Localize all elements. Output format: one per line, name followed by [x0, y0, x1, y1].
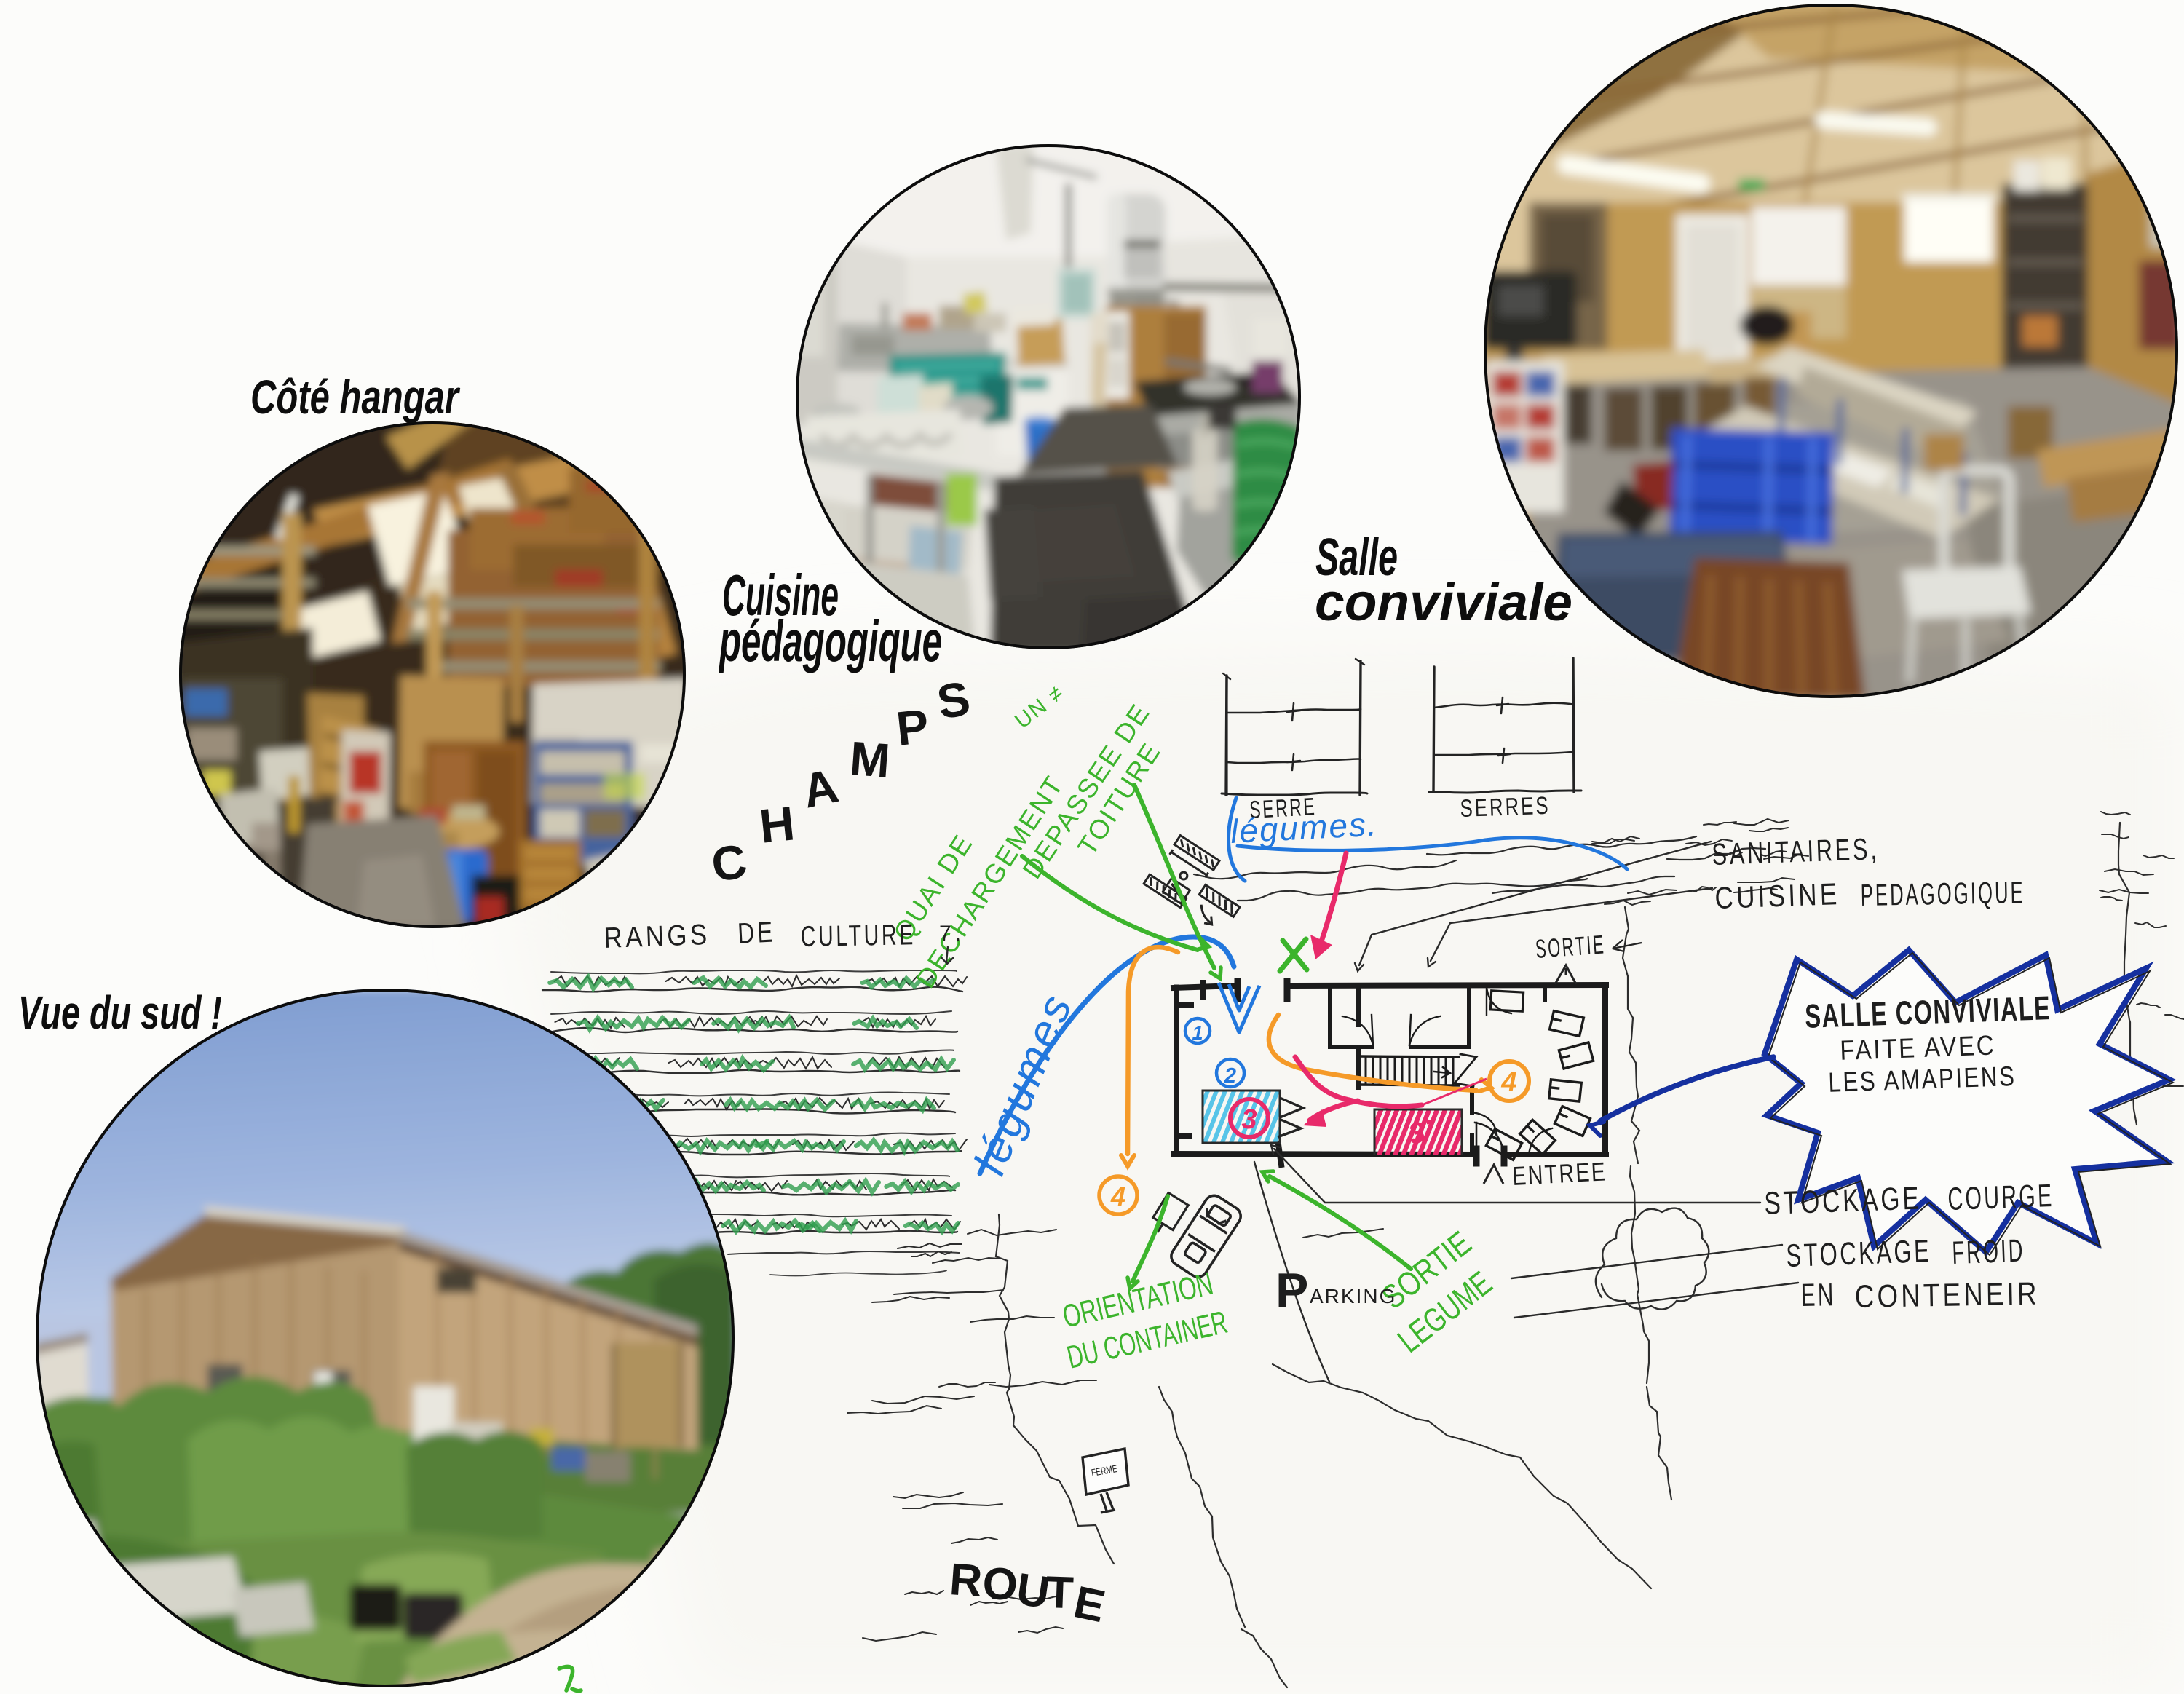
- svg-text:STOCKAGE: STOCKAGE: [1764, 1180, 1923, 1222]
- svg-text:CUISINE: CUISINE: [1714, 876, 1841, 915]
- svg-text:7.: 7.: [939, 922, 965, 946]
- svg-text:LES AMAPIENS: LES AMAPIENS: [1828, 1061, 2017, 1099]
- svg-text:P: P: [1275, 1263, 1308, 1318]
- svg-text:légumes.: légumes.: [1230, 804, 1379, 850]
- svg-text:SERRES: SERRES: [1460, 792, 1551, 823]
- svg-text:Vue du sud !: Vue du sud !: [18, 986, 222, 1039]
- svg-text:SANITAIRES,: SANITAIRES,: [1712, 831, 1880, 871]
- svg-text:STOCKAGE: STOCKAGE: [1786, 1233, 1933, 1274]
- svg-text:2: 2: [1224, 1064, 1236, 1088]
- svg-text:H: H: [757, 796, 797, 853]
- svg-text:1: 1: [1192, 1022, 1203, 1044]
- svg-text:4: 4: [1500, 1067, 1516, 1098]
- svg-text:pédagogique: pédagogique: [719, 609, 942, 673]
- svg-text:ARKING: ARKING: [1310, 1285, 1396, 1307]
- svg-text:SORTIE: SORTIE: [1535, 929, 1607, 964]
- svg-text:PEDAGOGIQUE: PEDAGOGIQUE: [1860, 875, 2025, 912]
- svg-text:conviviale: conviviale: [1315, 574, 1572, 632]
- svg-text:T: T: [1045, 1567, 1075, 1618]
- svg-text:FAITE AVEC: FAITE AVEC: [1840, 1030, 1996, 1066]
- svg-text:CULTURE: CULTURE: [800, 919, 916, 953]
- svg-text:R: R: [948, 1554, 984, 1607]
- svg-text:DE: DE: [737, 916, 776, 950]
- svg-text:FROID: FROID: [1952, 1233, 2026, 1271]
- svg-text:3: 3: [1241, 1104, 1257, 1135]
- svg-text:O: O: [982, 1559, 1019, 1610]
- svg-text:M: M: [848, 731, 892, 788]
- svg-text:P: P: [894, 699, 932, 756]
- svg-text:EN: EN: [1800, 1277, 1836, 1313]
- svg-text:4: 4: [1110, 1182, 1125, 1211]
- svg-text:CONTENEIR: CONTENEIR: [1854, 1276, 2040, 1315]
- svg-text:COURGE: COURGE: [1947, 1178, 2055, 1217]
- svg-text:Côté hangar: Côté hangar: [250, 370, 460, 424]
- svg-text:RANGS: RANGS: [604, 919, 711, 954]
- svg-text:ENTREE: ENTREE: [1511, 1156, 1607, 1191]
